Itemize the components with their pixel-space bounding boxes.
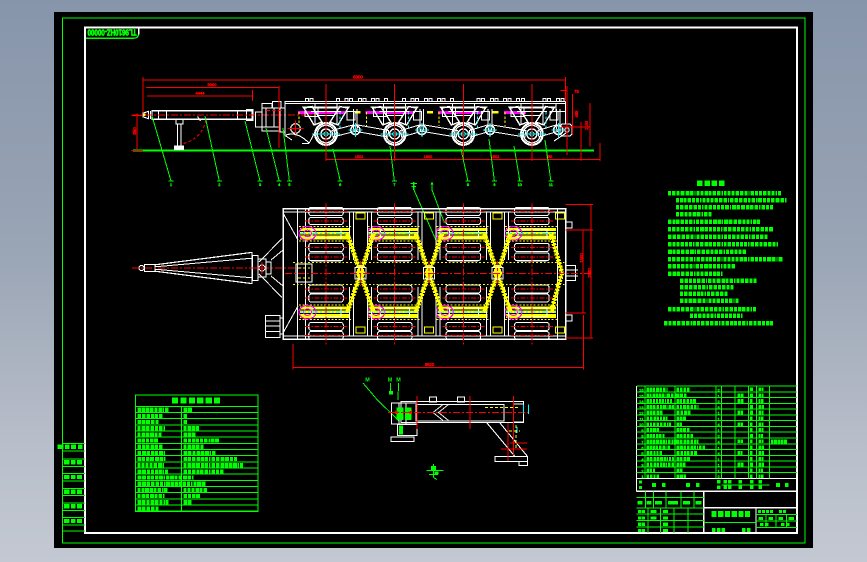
svg-text:5: 5 xyxy=(288,183,290,187)
svg-text:4: 4 xyxy=(278,183,280,187)
svg-text:2: 2 xyxy=(218,183,220,187)
svg-text:1: 1 xyxy=(641,474,643,479)
svg-text:1: 1 xyxy=(718,468,720,473)
svg-text:76: 76 xyxy=(574,89,579,94)
svg-text:9620: 9620 xyxy=(425,362,435,367)
svg-text:2: 2 xyxy=(718,474,720,479)
svg-text:1: 1 xyxy=(718,416,720,421)
svg-text:15: 15 xyxy=(639,393,643,398)
svg-text:8: 8 xyxy=(641,434,643,439)
svg-text:12: 12 xyxy=(639,411,643,416)
svg-text:1502: 1502 xyxy=(491,155,499,159)
svg-text:9: 9 xyxy=(641,428,643,433)
svg-text:1: 1 xyxy=(170,183,172,187)
svg-text:1500: 1500 xyxy=(579,253,584,263)
svg-text:1800: 1800 xyxy=(424,155,432,159)
svg-text:1150: 1150 xyxy=(584,120,589,130)
svg-text:M: M xyxy=(388,378,393,384)
svg-text:1502: 1502 xyxy=(355,155,363,159)
svg-text:3: 3 xyxy=(259,183,261,187)
svg-text:2: 2 xyxy=(718,388,720,393)
svg-text:850: 850 xyxy=(132,127,137,135)
svg-text:1: 1 xyxy=(718,393,720,398)
svg-text:1: 1 xyxy=(718,463,720,468)
svg-text:2: 2 xyxy=(641,468,643,473)
svg-text:7: 7 xyxy=(393,183,395,187)
svg-text:9: 9 xyxy=(493,183,495,187)
svg-text:3: 3 xyxy=(641,463,643,468)
svg-text:8300: 8300 xyxy=(353,74,363,79)
svg-text:2990: 2990 xyxy=(587,268,592,278)
svg-text:7: 7 xyxy=(641,440,643,445)
svg-text:5000: 5000 xyxy=(208,82,218,87)
svg-text:8: 8 xyxy=(467,183,469,187)
svg-text:11: 11 xyxy=(549,183,553,187)
svg-text:1: 1 xyxy=(718,411,720,416)
svg-text:1: 1 xyxy=(718,428,720,433)
svg-text:13: 13 xyxy=(639,405,643,410)
svg-text:M: M xyxy=(365,378,370,384)
svg-text:2: 2 xyxy=(718,399,720,404)
svg-text:10: 10 xyxy=(518,183,522,187)
svg-text:1: 1 xyxy=(718,457,720,462)
svg-text:5: 5 xyxy=(641,451,643,456)
svg-text:TL9610HZ-00000: TL9610HZ-00000 xyxy=(87,28,136,37)
svg-text:8: 8 xyxy=(718,405,720,410)
svg-text:6: 6 xyxy=(641,445,643,450)
svg-text:1: 1 xyxy=(718,445,720,450)
svg-text:6: 6 xyxy=(339,183,341,187)
svg-text:465: 465 xyxy=(574,110,579,118)
svg-text:11: 11 xyxy=(639,416,643,421)
svg-text:M: M xyxy=(396,378,401,384)
svg-text:4444: 4444 xyxy=(196,90,206,95)
svg-text:16: 16 xyxy=(639,388,643,393)
svg-text:2: 2 xyxy=(718,434,720,439)
